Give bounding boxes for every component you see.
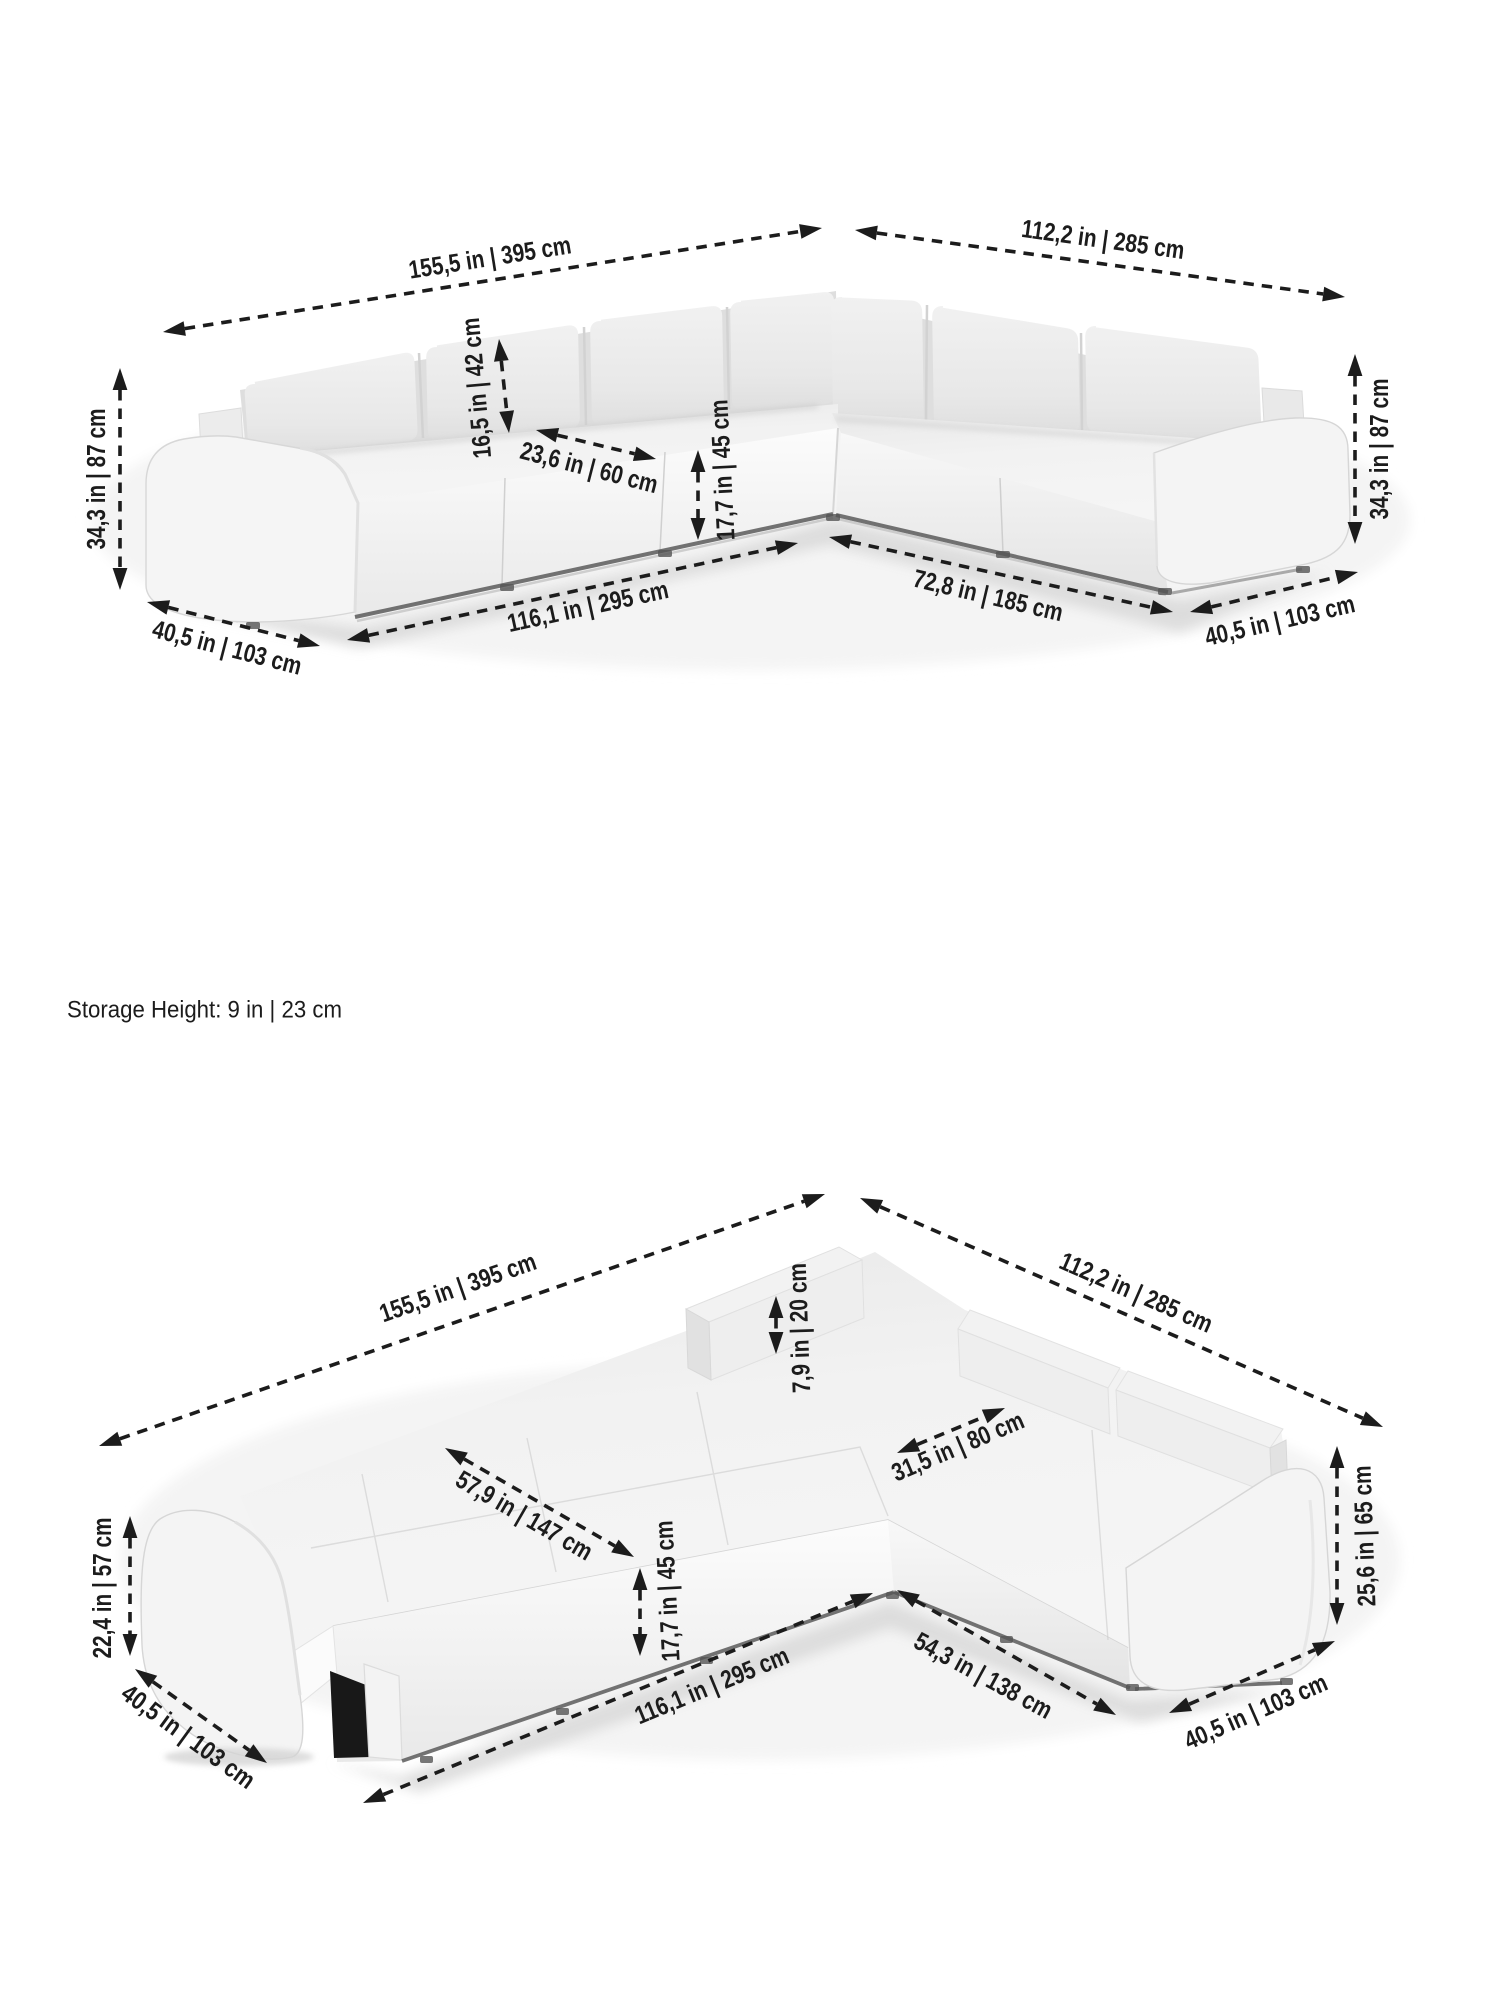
svg-text:22,4 in | 57 cm: 22,4 in | 57 cm xyxy=(89,1518,117,1659)
svg-text:Storage Height: 9 in | 23 cm: Storage Height: 9 in | 23 cm xyxy=(67,997,342,1024)
svg-text:25,6 in | 65 cm: 25,6 in | 65 cm xyxy=(1349,1465,1382,1607)
svg-text:7,9 in | 20 cm: 7,9 in | 20 cm xyxy=(784,1263,817,1394)
svg-text:34,3 in | 87 cm: 34,3 in | 87 cm xyxy=(1366,379,1394,520)
svg-text:34,3 in | 87 cm: 34,3 in | 87 cm xyxy=(83,409,111,550)
